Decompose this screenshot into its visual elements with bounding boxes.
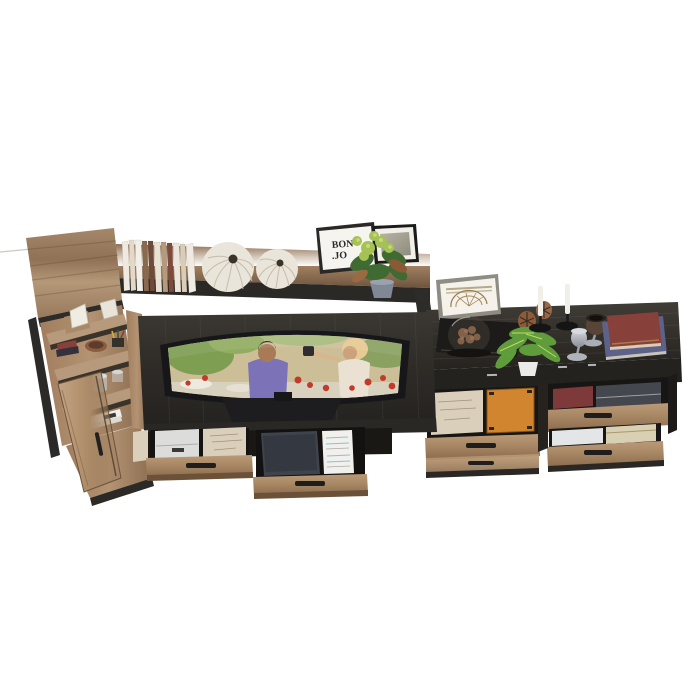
side-folder-glimpse	[133, 430, 148, 462]
white-tray	[552, 428, 603, 446]
drawer-handle	[466, 443, 496, 448]
cloche-base	[447, 349, 491, 358]
console-drawer-right-handle	[295, 481, 325, 486]
dark-red-book	[553, 386, 593, 409]
frame-text-line2: .JO	[331, 250, 347, 262]
cream-folder-handwritten	[203, 427, 246, 459]
orange-folder	[487, 388, 534, 433]
framed-antique-chart	[436, 274, 501, 320]
console-drawer-right	[253, 427, 368, 499]
plant-white-pot	[518, 362, 538, 376]
right-drawer1-handle	[584, 413, 612, 418]
glass-jar	[112, 370, 123, 382]
tv-stand	[126, 310, 437, 499]
vase-opening-small	[277, 260, 284, 267]
shelf-book-row	[122, 240, 196, 293]
divider-panel	[538, 384, 548, 452]
bridge-shelf: BON .JO	[116, 222, 433, 323]
white-card-stack	[322, 430, 354, 474]
candle-base-1	[529, 324, 551, 333]
sideboard-left-drawer-open	[425, 386, 540, 478]
right-side-panel	[668, 373, 677, 434]
console-drawer-left-handle	[186, 463, 216, 468]
glass-cloche-dome	[448, 316, 490, 354]
sideboard-right-section	[538, 373, 677, 472]
product-render-stage: BON .JO	[0, 0, 700, 700]
right-cabinet	[425, 274, 682, 478]
furniture-render: BON .JO	[0, 0, 700, 700]
right-drawer2-handle	[584, 450, 612, 455]
frame-text-line1: BON	[331, 238, 354, 251]
cream-document-file	[431, 390, 483, 435]
console-drawer-left	[146, 427, 253, 481]
stacked-books	[602, 312, 667, 360]
vase-opening-large	[229, 255, 238, 264]
cream-box	[606, 424, 656, 444]
drawer-handle-2	[468, 461, 494, 465]
